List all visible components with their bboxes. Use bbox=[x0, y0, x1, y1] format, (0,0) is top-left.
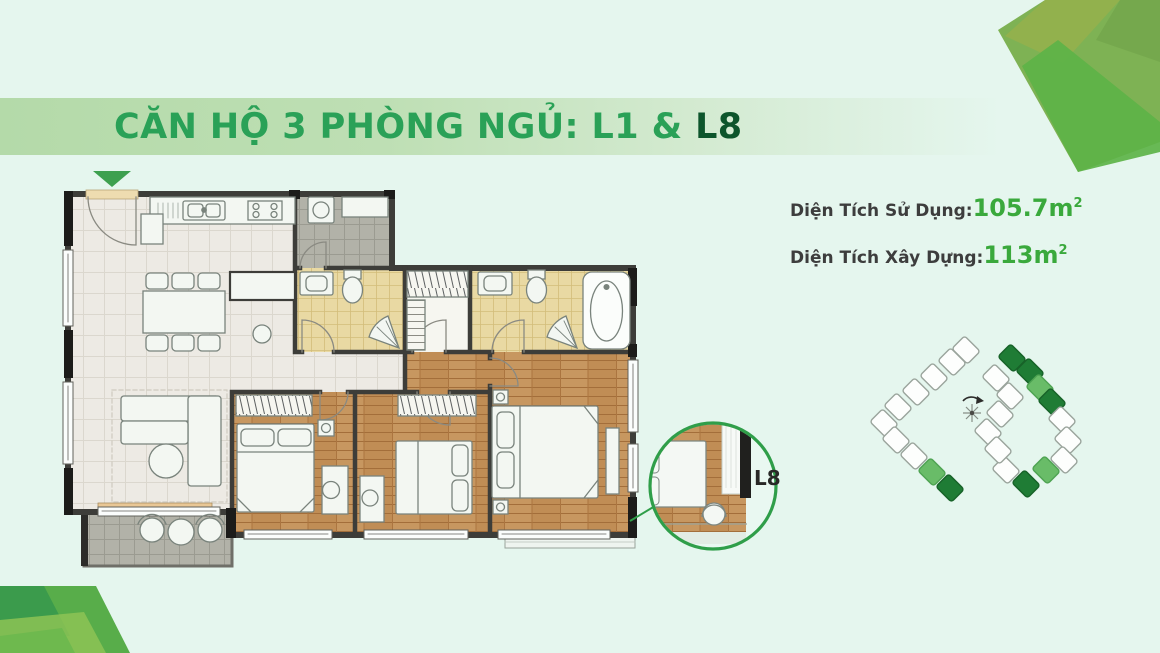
site-plan-map bbox=[870, 336, 1082, 502]
page-background: CĂN HỘ 3 PHÒNG NGỦ: L1 & L8 Diện Tích Sử… bbox=[0, 0, 1160, 653]
entry-threshold bbox=[86, 190, 138, 199]
decoration-top-right bbox=[998, 0, 1160, 172]
stat-value-sup: 2 bbox=[1073, 196, 1082, 211]
page-title-main: CĂN HỘ 3 PHÒNG NGỦ: L1 & bbox=[114, 107, 695, 147]
stat-label: Diện Tích Sử Dụng: bbox=[790, 201, 973, 221]
site-plan-left-cluster bbox=[870, 336, 980, 502]
kitchen-counter bbox=[150, 197, 295, 224]
compass-icon bbox=[963, 396, 984, 422]
page-title-highlight: L8 bbox=[695, 107, 742, 147]
coffee-table bbox=[149, 444, 183, 478]
callout-unit-label: L8 bbox=[754, 466, 781, 490]
stat-value: 105.7m2 bbox=[973, 194, 1083, 222]
area-stats: Diện Tích Sử Dụng: 105.7m2 Diện Tích Xây… bbox=[790, 194, 974, 288]
balcony-furniture bbox=[138, 514, 224, 545]
page-title: CĂN HỘ 3 PHÒNG NGỦ: L1 & L8 bbox=[114, 107, 743, 147]
shoe-cabinet bbox=[141, 214, 163, 244]
stat-usable-area: Diện Tích Sử Dụng: 105.7m2 bbox=[790, 194, 974, 222]
dining-set bbox=[143, 273, 225, 351]
stat-label: Diện Tích Xây Dựng: bbox=[790, 248, 983, 268]
callout-room-view bbox=[640, 418, 751, 544]
stat-value-sup: 2 bbox=[1058, 243, 1067, 258]
site-plan-right-cluster bbox=[974, 344, 1082, 498]
entrance-arrow-icon bbox=[93, 171, 131, 187]
title-banner: CĂN HỘ 3 PHÒNG NGỦ: L1 & L8 bbox=[0, 98, 1012, 155]
floor-plan bbox=[63, 190, 638, 566]
decoration-bottom-left bbox=[0, 586, 130, 653]
stat-gross-area: Diện Tích Xây Dựng: 113m2 bbox=[790, 241, 974, 269]
stat-value: 113m2 bbox=[983, 241, 1067, 269]
